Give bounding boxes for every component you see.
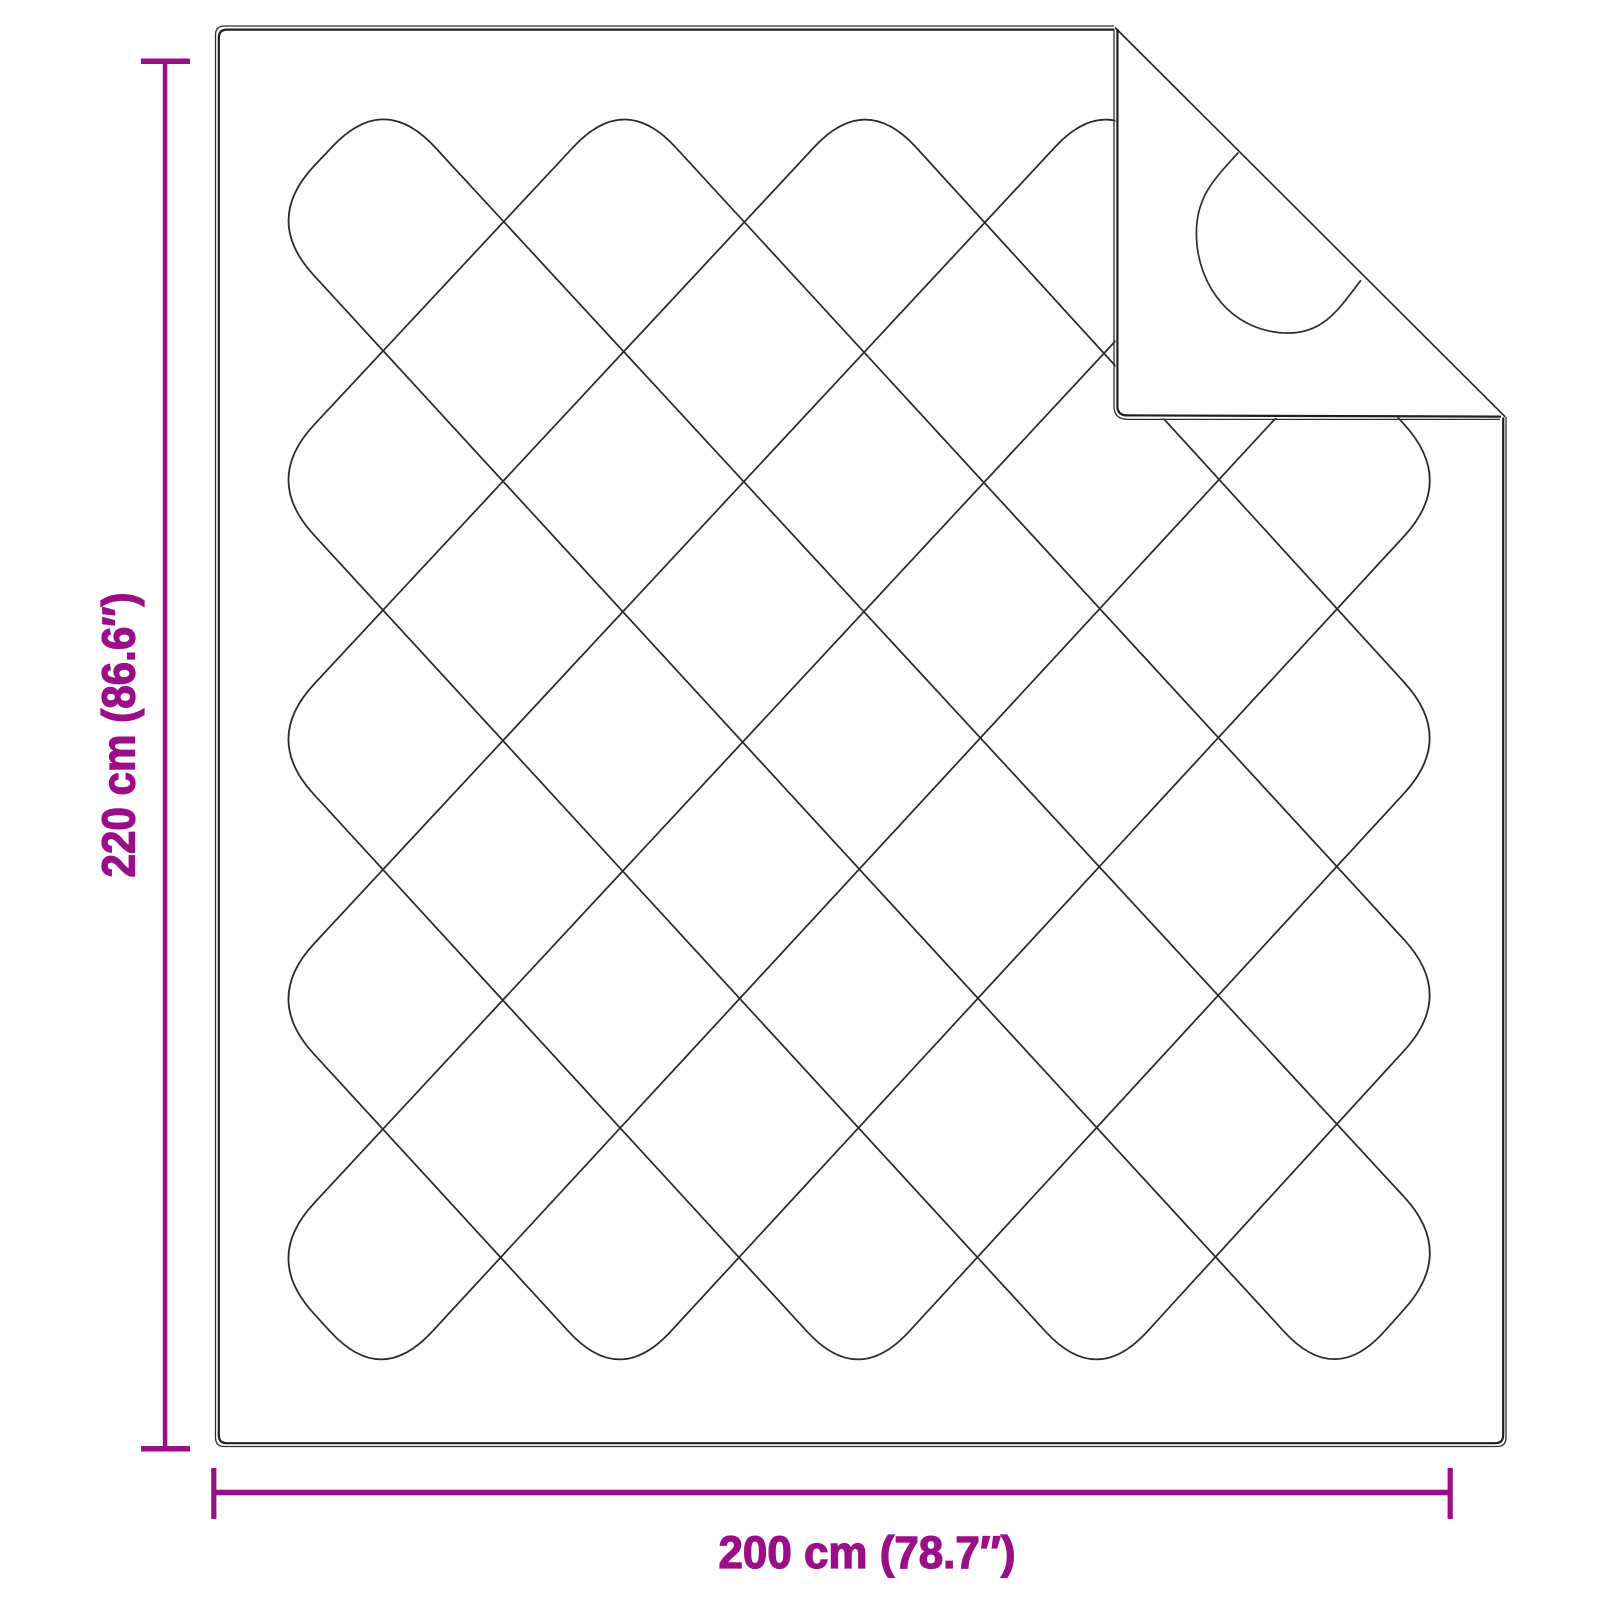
svg-text:200 cm (78.7″): 200 cm (78.7″) [719,1527,1016,1578]
svg-text:220 cm (86.6″): 220 cm (86.6″) [93,593,145,878]
